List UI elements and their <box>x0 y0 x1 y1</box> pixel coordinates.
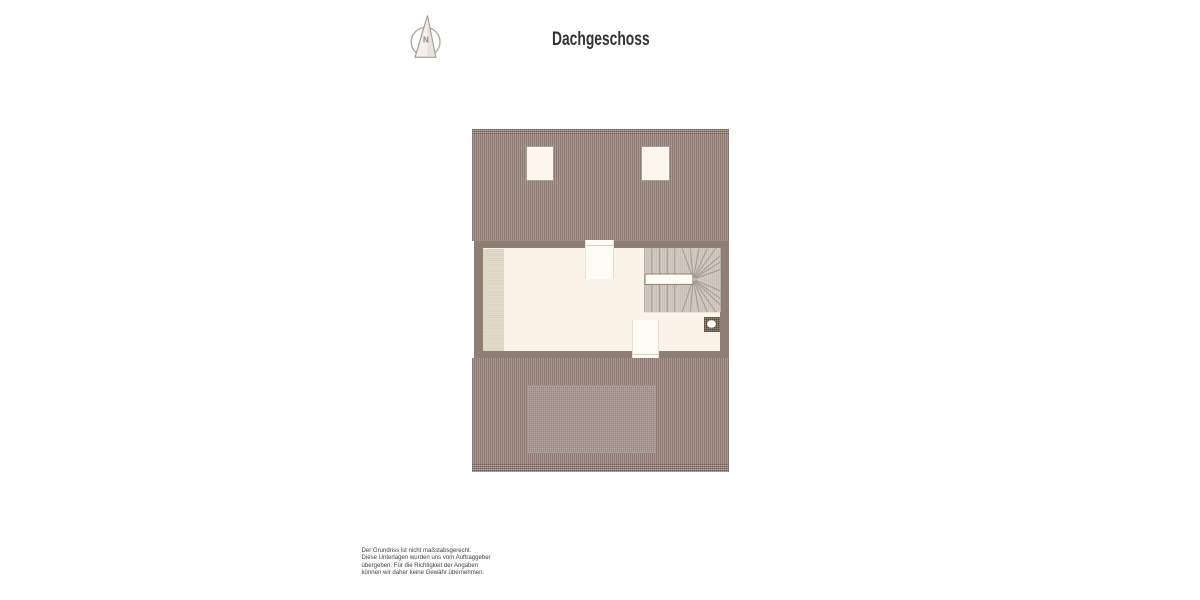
svg-text:N: N <box>423 36 429 45</box>
